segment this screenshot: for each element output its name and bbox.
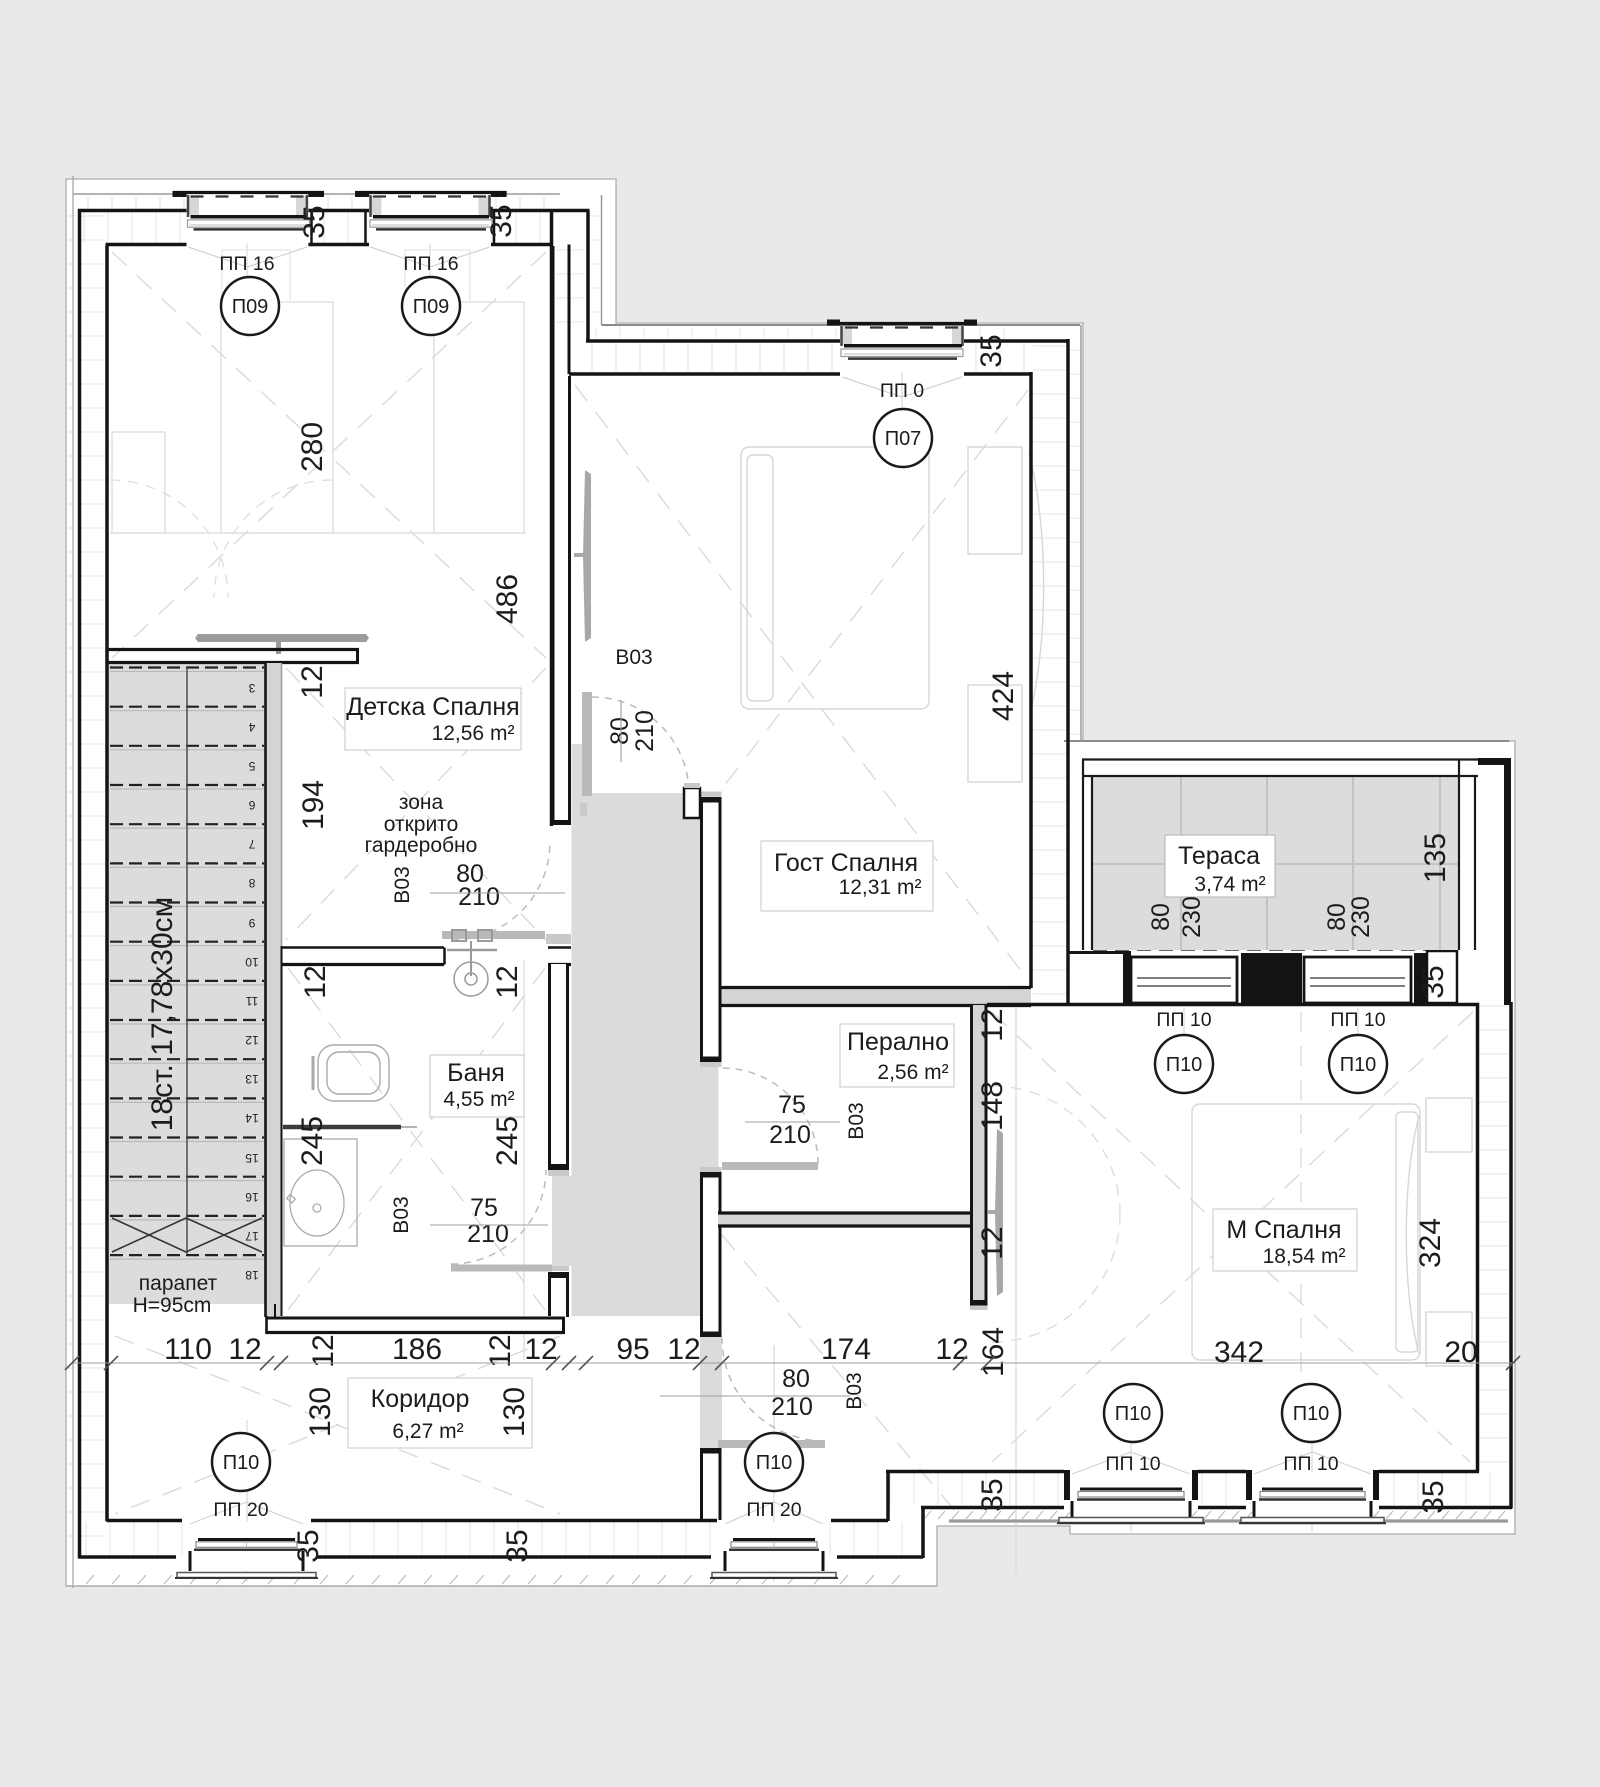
svg-text:4: 4 — [248, 720, 255, 734]
svg-text:Детска Спалня: Детска Спалня — [346, 693, 519, 721]
svg-text:12,56 m²: 12,56 m² — [432, 722, 515, 745]
svg-text:194: 194 — [297, 780, 330, 830]
svg-text:12: 12 — [976, 1226, 1009, 1259]
svg-text:ПП 10: ПП 10 — [1330, 1009, 1385, 1031]
svg-text:486: 486 — [491, 574, 524, 624]
svg-text:35: 35 — [975, 334, 1008, 367]
svg-text:18,54 m²: 18,54 m² — [1263, 1245, 1346, 1268]
svg-text:18ст. 17,78х30см: 18ст. 17,78х30см — [146, 897, 179, 1132]
svg-text:П10: П10 — [1340, 1054, 1377, 1076]
svg-text:Коридор: Коридор — [371, 1385, 470, 1413]
svg-text:П10: П10 — [756, 1452, 793, 1474]
svg-text:П10: П10 — [1293, 1403, 1330, 1425]
svg-text:9: 9 — [248, 916, 255, 930]
svg-text:открито: открито — [384, 813, 459, 836]
svg-text:П09: П09 — [413, 296, 450, 318]
svg-text:35: 35 — [298, 205, 331, 238]
svg-text:ПП 0: ПП 0 — [880, 380, 924, 402]
svg-text:148: 148 — [976, 1081, 1009, 1131]
svg-text:12: 12 — [245, 1033, 259, 1047]
svg-text:35: 35 — [976, 1478, 1009, 1511]
svg-text:35: 35 — [292, 1529, 325, 1562]
svg-text:12: 12 — [491, 965, 524, 998]
svg-text:H=95cm: H=95cm — [133, 1294, 212, 1317]
svg-text:П09: П09 — [232, 296, 269, 318]
svg-text:18: 18 — [245, 1268, 259, 1282]
svg-text:6,27 m²: 6,27 m² — [392, 1420, 463, 1443]
svg-text:П10: П10 — [1166, 1054, 1203, 1076]
svg-text:110: 110 — [164, 1333, 212, 1366]
svg-text:342: 342 — [1214, 1336, 1264, 1369]
svg-text:5: 5 — [248, 759, 255, 773]
svg-text:П07: П07 — [885, 428, 922, 450]
svg-text:зона: зона — [399, 791, 444, 814]
svg-text:80: 80 — [606, 717, 634, 745]
svg-text:12: 12 — [976, 1008, 1009, 1041]
svg-text:35: 35 — [1417, 965, 1450, 998]
svg-text:230: 230 — [1347, 896, 1375, 938]
svg-text:ПП 10: ПП 10 — [1156, 1009, 1211, 1031]
svg-text:В03: В03 — [391, 866, 414, 903]
svg-text:210: 210 — [467, 1220, 509, 1248]
svg-text:10: 10 — [245, 955, 259, 969]
svg-text:12: 12 — [667, 1333, 700, 1366]
svg-text:75: 75 — [778, 1091, 806, 1119]
svg-text:ПП 10: ПП 10 — [1105, 1453, 1160, 1475]
svg-text:210: 210 — [771, 1393, 813, 1421]
svg-text:М Спалня: М Спалня — [1226, 1216, 1341, 1244]
svg-text:186: 186 — [392, 1333, 442, 1366]
svg-text:В03: В03 — [845, 1102, 868, 1139]
svg-text:ПП 20: ПП 20 — [746, 1499, 801, 1521]
svg-text:15: 15 — [245, 1151, 259, 1165]
svg-text:130: 130 — [304, 1387, 337, 1437]
svg-text:75: 75 — [470, 1194, 498, 1222]
svg-text:35: 35 — [485, 204, 518, 237]
svg-text:ПП 16: ПП 16 — [403, 253, 458, 275]
svg-text:ПП 20: ПП 20 — [213, 1499, 268, 1521]
svg-text:35: 35 — [501, 1529, 534, 1562]
svg-text:Тераса: Тераса — [1178, 842, 1260, 870]
svg-text:парапет: парапет — [139, 1272, 218, 1295]
svg-text:3: 3 — [248, 681, 255, 695]
svg-text:12: 12 — [228, 1333, 261, 1366]
svg-text:230: 230 — [1178, 896, 1206, 938]
svg-text:7: 7 — [248, 837, 255, 851]
svg-text:3,74 m²: 3,74 m² — [1194, 873, 1265, 896]
svg-text:17: 17 — [245, 1229, 259, 1243]
svg-text:8: 8 — [248, 876, 255, 890]
svg-text:174: 174 — [821, 1333, 871, 1366]
svg-text:16: 16 — [245, 1190, 259, 1204]
svg-text:95: 95 — [616, 1333, 649, 1366]
svg-text:Баня: Баня — [447, 1059, 505, 1087]
svg-text:12,31 m²: 12,31 m² — [839, 876, 922, 899]
svg-text:280: 280 — [296, 422, 329, 472]
svg-text:Перално: Перално — [847, 1028, 949, 1056]
svg-text:12: 12 — [524, 1333, 557, 1366]
svg-text:130: 130 — [498, 1387, 531, 1437]
svg-text:4,55 m²: 4,55 m² — [443, 1088, 514, 1111]
svg-text:В03: В03 — [843, 1372, 866, 1409]
svg-text:80: 80 — [782, 1365, 810, 1393]
svg-text:П10: П10 — [223, 1452, 260, 1474]
svg-text:210: 210 — [769, 1121, 811, 1149]
svg-text:гардеробно: гардеробно — [365, 834, 478, 857]
svg-text:424: 424 — [987, 671, 1020, 721]
svg-text:210: 210 — [458, 883, 500, 911]
svg-text:В03: В03 — [615, 646, 652, 669]
svg-text:135: 135 — [1419, 833, 1452, 883]
svg-text:20: 20 — [1444, 1336, 1477, 1369]
svg-text:12: 12 — [935, 1333, 968, 1366]
svg-text:13: 13 — [245, 1072, 259, 1086]
svg-text:80: 80 — [1147, 903, 1175, 931]
svg-text:12: 12 — [299, 965, 332, 998]
svg-text:6: 6 — [248, 798, 255, 812]
svg-text:324: 324 — [1414, 1218, 1447, 1268]
svg-text:245: 245 — [296, 1116, 329, 1166]
svg-text:Гост Спалня: Гост Спалня — [774, 849, 918, 877]
svg-text:П10: П10 — [1115, 1403, 1152, 1425]
svg-text:ПП 10: ПП 10 — [1283, 1453, 1338, 1475]
svg-text:210: 210 — [631, 710, 659, 752]
svg-text:35: 35 — [1417, 1480, 1450, 1513]
svg-text:11: 11 — [245, 994, 258, 1008]
svg-text:14: 14 — [245, 1111, 259, 1125]
svg-text:245: 245 — [491, 1116, 524, 1166]
svg-text:В03: В03 — [390, 1196, 413, 1233]
svg-text:ПП 16: ПП 16 — [219, 253, 274, 275]
svg-text:12: 12 — [296, 665, 329, 698]
svg-text:2,56 m²: 2,56 m² — [877, 1061, 948, 1084]
